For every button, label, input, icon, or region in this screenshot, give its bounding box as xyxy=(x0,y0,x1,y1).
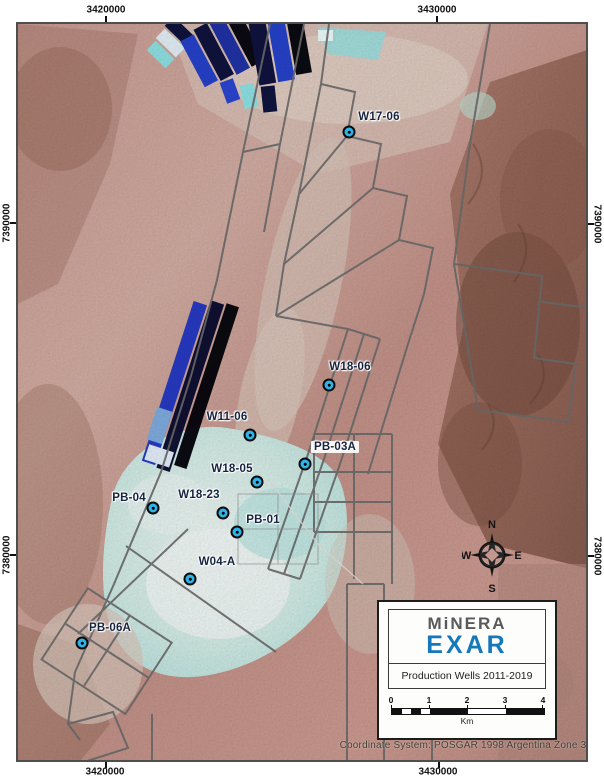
scale-tick-label: 2 xyxy=(465,695,470,705)
axis-label-top-west: 3420000 xyxy=(87,5,126,16)
axis-tick xyxy=(438,762,440,768)
well-label: W11-06 xyxy=(207,411,248,423)
compass-n-label: N xyxy=(488,519,496,531)
well-marker-pb-06a[interactable] xyxy=(76,637,89,650)
compass-s-label: S xyxy=(488,583,495,595)
well-label: PB-06A xyxy=(89,622,131,634)
scale-bar-segments xyxy=(391,708,545,715)
map-canvas: W17-06 W18-06 W11-06 PB-03A W18-05 PB-04… xyxy=(16,22,588,762)
compass-e-label: E xyxy=(514,550,521,562)
well-label: W17-06 xyxy=(358,111,399,123)
well-label: W04-A xyxy=(199,556,236,568)
axis-label-bottom-west: 3420000 xyxy=(86,767,125,778)
map-title: Production Wells 2011-2019 xyxy=(388,664,546,689)
well-label: PB-04 xyxy=(112,492,146,504)
well-marker-w17-06[interactable] xyxy=(343,126,356,139)
scale-tick-label: 4 xyxy=(541,695,546,705)
well-marker-w18-06[interactable] xyxy=(323,379,336,392)
axis-label-top-east: 3430000 xyxy=(418,5,457,16)
well-marker-w18-05[interactable] xyxy=(251,476,264,489)
well-label: PB-03A xyxy=(311,441,359,453)
scale-bar: 0 1 2 3 4 Km xyxy=(391,695,543,725)
brand-name-exar: EXAR xyxy=(389,633,545,657)
well-label: PB-01 xyxy=(246,514,280,526)
axis-tick xyxy=(105,762,107,768)
scale-tick-label: 3 xyxy=(503,695,508,705)
axis-label-bottom-east: 3430000 xyxy=(419,767,458,778)
well-marker-w11-06[interactable] xyxy=(244,429,257,442)
well-label: W18-23 xyxy=(178,489,219,501)
axis-tick xyxy=(588,223,594,225)
scale-tick-label: 1 xyxy=(427,695,432,705)
well-marker-pb-04[interactable] xyxy=(147,502,160,515)
map-figure: 3420000 3430000 3420000 3430000 7390000 … xyxy=(0,0,604,784)
coordinate-system-note: Coordinate System: POSGAR 1998 Argentina… xyxy=(337,740,588,751)
minera-exar-logo: MiNERA EXAR xyxy=(388,609,546,664)
legend-box: MiNERA EXAR Production Wells 2011-2019 0… xyxy=(377,600,557,740)
scale-unit-label: Km xyxy=(391,716,543,726)
well-label: W18-06 xyxy=(329,361,370,373)
well-marker-w18-23[interactable] xyxy=(217,507,230,520)
well-marker-pb-01[interactable] xyxy=(231,526,244,539)
compass-rose: N S W E xyxy=(462,516,522,596)
well-label: W18-05 xyxy=(211,463,252,475)
well-marker-w04-a[interactable] xyxy=(184,573,197,586)
well-marker-pb-03a[interactable] xyxy=(299,458,312,471)
axis-tick xyxy=(588,555,594,557)
scale-tick-label: 0 xyxy=(389,695,394,705)
compass-w-label: W xyxy=(462,550,472,562)
